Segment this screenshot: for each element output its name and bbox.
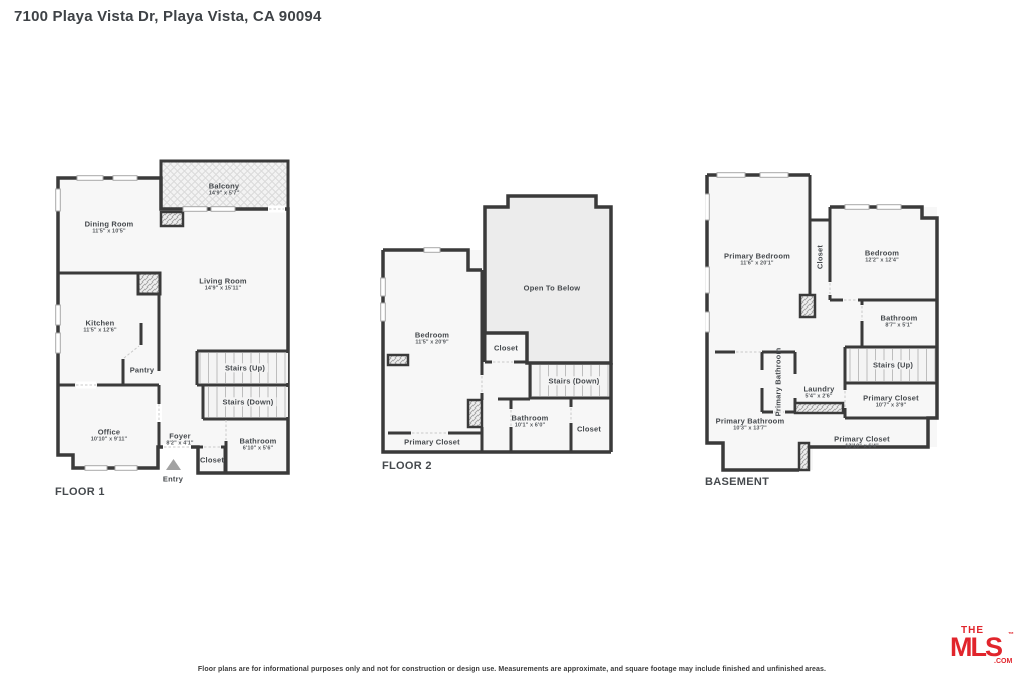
room-label-stairs-down: Stairs (Down) xyxy=(220,397,277,406)
room-label-pantry: Pantry xyxy=(130,365,155,374)
room-label-primary-bedroom: Primary Bedroom 11'6" x 20'1" xyxy=(724,252,790,269)
room-label-closet: Closet xyxy=(815,245,824,269)
room-label-closet2: Closet xyxy=(577,424,601,433)
room-label-primary-closet-lower: Primary Closet 13'10" x 6'4" xyxy=(834,435,890,452)
room-label-foyer: Foyer 8'2" x 4'1" xyxy=(166,432,193,449)
room-label-primary-bathroom: Primary Bathroom 10'3" x 13'7" xyxy=(716,417,785,434)
room-label-office: Office 10'10" x 9'11" xyxy=(91,428,127,445)
room-label-bathroom: Bathroom 6'10" x 5'6" xyxy=(239,437,276,454)
room-label-stairs-down: Stairs (Down) xyxy=(546,376,603,385)
basement-caption: BASEMENT xyxy=(705,476,769,488)
room-label-living: Living Room 14'9" x 15'11" xyxy=(199,277,247,294)
room-label-bathroom: Bathroom 10'1" x 6'0" xyxy=(511,414,548,431)
room-label-primary-closet: Primary Closet xyxy=(404,437,460,446)
room-label-bathroom: Bathroom 8'7" x 5'1" xyxy=(880,314,917,331)
room-label-primary-bathroom-small: Primary Bathroom xyxy=(773,348,782,417)
floorplan-sheet: { "page": { "title": "7100 Playa Vista D… xyxy=(0,0,1024,683)
disclaimer-text: Floor plans are for informational purpos… xyxy=(0,666,1024,673)
room-label-kitchen: Kitchen 11'5" x 12'6" xyxy=(83,319,116,336)
floor1-caption: FLOOR 1 xyxy=(55,486,105,498)
room-label-laundry: Laundry 5'4" x 2'6" xyxy=(804,385,835,402)
page-title: 7100 Playa Vista Dr, Playa Vista, CA 900… xyxy=(14,8,322,25)
room-label-open-to-below: Open To Below xyxy=(524,283,581,292)
room-label-closet: Closet xyxy=(494,343,518,352)
room-label-balcony: Balcony 14'9" x 5'7" xyxy=(209,182,240,199)
room-label-closet: Closet xyxy=(200,455,224,464)
floor2-plan: Open To Below Bedroom 11'5" x 20'9" Clos… xyxy=(378,193,616,459)
floor2-caption: FLOOR 2 xyxy=(382,460,432,472)
room-label-stairs-up: Stairs (Up) xyxy=(870,360,916,369)
floor1-plan: Balcony 14'9" x 5'7" Dining Room 11'5" x… xyxy=(55,157,292,487)
room-label-dining: Dining Room 11'5" x 10'5" xyxy=(85,220,134,237)
room-label-entry: Entry xyxy=(163,474,183,483)
room-label-bedroom: Bedroom 11'5" x 20'9" xyxy=(415,331,449,348)
room-label-bedroom: Bedroom 12'2" x 12'4" xyxy=(865,249,899,266)
mls-logo: THE ™ MLS .COM xyxy=(948,626,1016,668)
entry-arrow-icon xyxy=(166,459,181,470)
room-label-stairs-up: Stairs (Up) xyxy=(222,363,268,372)
mls-logo-mls: MLS xyxy=(950,634,1001,661)
floor2-plan-drawing xyxy=(378,193,616,459)
basement-plan: Primary Bedroom 11'6" x 20'1" Closet Bed… xyxy=(705,172,942,474)
mls-logo-tm: ™ xyxy=(1008,632,1014,638)
mls-logo-com: .COM xyxy=(994,658,1012,665)
room-label-primary-closet-upper: Primary Closet 10'7" x 3'9" xyxy=(863,394,919,411)
